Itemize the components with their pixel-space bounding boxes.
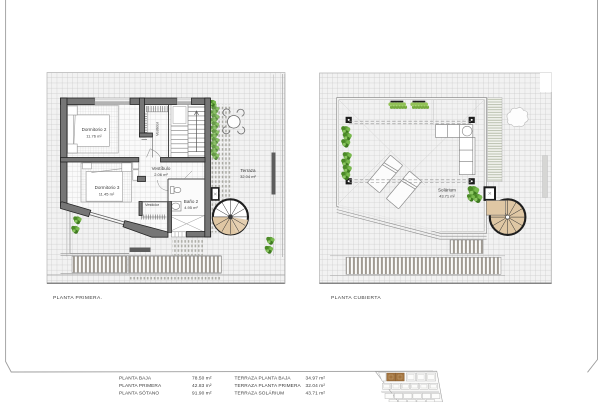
svg-text:Solárium: Solárium — [438, 188, 456, 193]
svg-text:11.45 m²: 11.45 m² — [99, 192, 115, 197]
svg-text:Dormitorio 3: Dormitorio 3 — [95, 185, 120, 190]
svg-text:32.04 m²: 32.04 m² — [306, 383, 326, 389]
svg-text:42.83 m²: 42.83 m² — [192, 383, 212, 389]
svg-text:78.50 m²: 78.50 m² — [192, 376, 212, 382]
svg-text:Vestíbulo: Vestíbulo — [152, 166, 171, 171]
svg-text:Vestidor: Vestidor — [145, 202, 160, 207]
svg-text:2.06 m²: 2.06 m² — [154, 172, 168, 177]
svg-text:PLANTA SÓTANO: PLANTA SÓTANO — [119, 389, 159, 396]
svg-text:Terraza: Terraza — [240, 168, 256, 173]
svg-text:Dormitorio 2: Dormitorio 2 — [82, 127, 107, 132]
svg-text:43.71 m²: 43.71 m² — [439, 194, 455, 199]
svg-text:4.95 m²: 4.95 m² — [184, 205, 198, 210]
svg-text:91.90 m²: 91.90 m² — [192, 390, 212, 396]
svg-text:PLANTA CUBIERTA: PLANTA CUBIERTA — [331, 295, 381, 301]
svg-text:PLANTA BAJA: PLANTA BAJA — [119, 376, 152, 382]
svg-text:11.76 m²: 11.76 m² — [86, 134, 102, 139]
svg-text:PLANTA PRIMERA: PLANTA PRIMERA — [119, 383, 162, 389]
svg-text:TERRAZA PLANTA PRIMERA: TERRAZA PLANTA PRIMERA — [235, 383, 302, 389]
svg-text:PLANTA PRIMERA.: PLANTA PRIMERA. — [53, 295, 102, 301]
svg-text:Baño 2: Baño 2 — [184, 199, 199, 204]
svg-text:TERRAZA SOLÁRIUM: TERRAZA SOLÁRIUM — [235, 389, 285, 396]
svg-text:Vestidor: Vestidor — [155, 121, 160, 136]
svg-text:43.71 m²: 43.71 m² — [306, 390, 326, 396]
svg-text:TERRAZA PLANTA BAJA: TERRAZA PLANTA BAJA — [235, 376, 292, 382]
svg-text:34.97 m²: 34.97 m² — [306, 376, 326, 382]
svg-text:32.04 m²: 32.04 m² — [240, 174, 256, 179]
